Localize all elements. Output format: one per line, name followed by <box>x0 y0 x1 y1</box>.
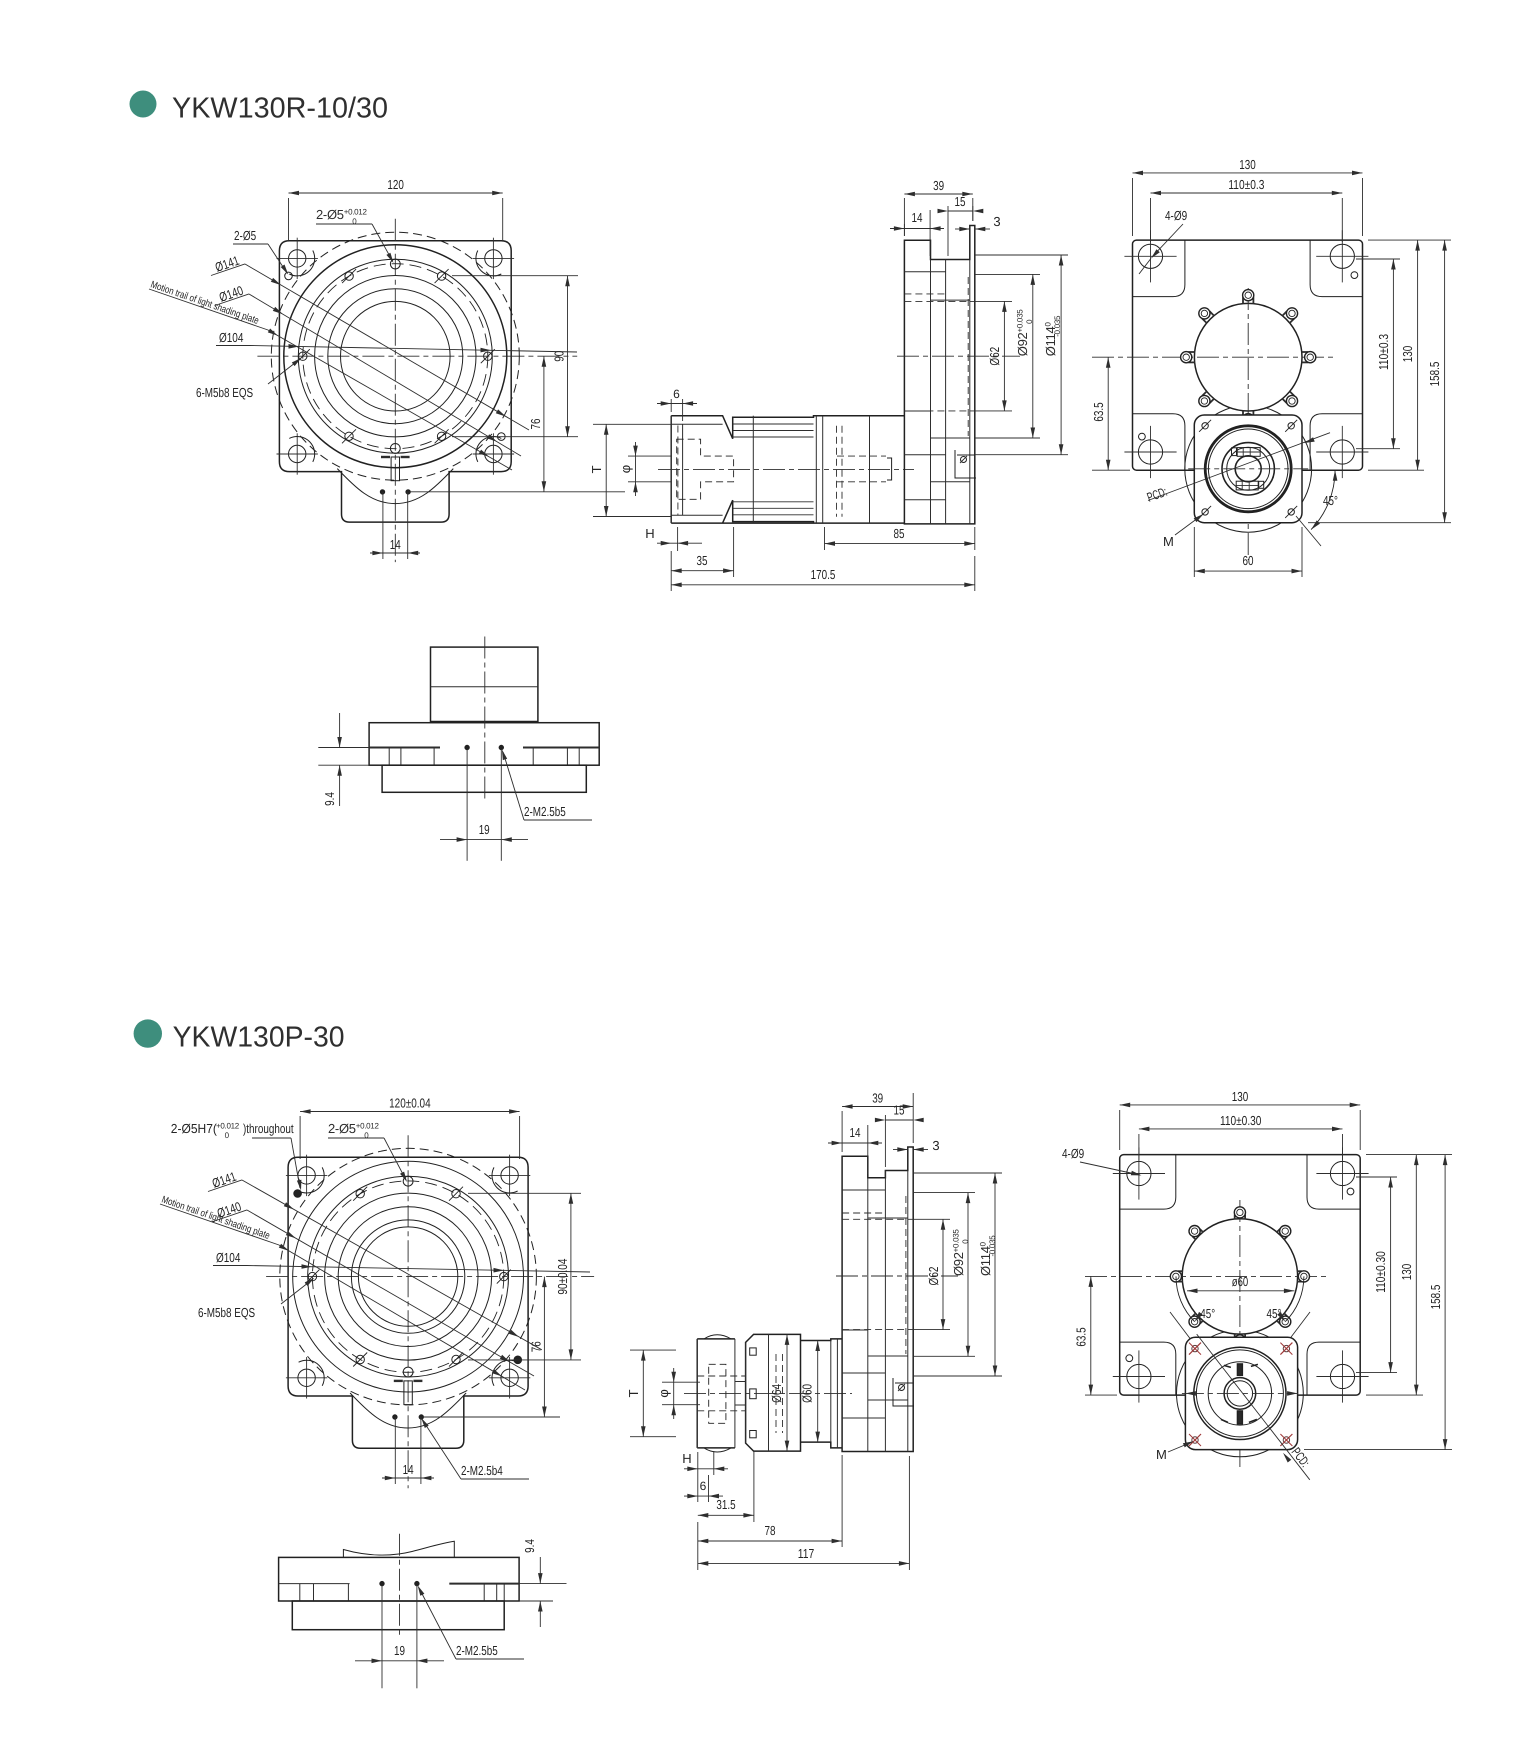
svg-text:Ø64: Ø64 <box>769 1384 784 1403</box>
svg-text:90: 90 <box>552 351 567 362</box>
svg-text:130: 130 <box>1400 346 1415 363</box>
svg-text:Ø60: Ø60 <box>800 1384 815 1403</box>
svg-text:120: 120 <box>387 177 404 192</box>
svg-text:45°: 45° <box>1200 1306 1215 1321</box>
svg-text:2-Ø5H7(: 2-Ø5H7( <box>171 1121 218 1136</box>
svg-text:45°: 45° <box>1267 1306 1282 1321</box>
svg-text:158.5: 158.5 <box>1427 362 1442 387</box>
svg-text:6-M5b8 EQS: 6-M5b8 EQS <box>196 385 253 400</box>
svg-text:35: 35 <box>697 553 708 568</box>
svg-text:130: 130 <box>1232 1089 1249 1104</box>
svg-text:170.5: 170.5 <box>811 567 836 582</box>
svg-text:85: 85 <box>894 526 905 541</box>
svg-text:9.4: 9.4 <box>322 792 337 806</box>
svg-text:76: 76 <box>528 1341 543 1352</box>
svg-text:39: 39 <box>872 1091 883 1106</box>
svg-text:158.5: 158.5 <box>1428 1285 1443 1310</box>
svg-text:4-Ø9: 4-Ø9 <box>1165 208 1187 223</box>
svg-text:6: 6 <box>700 1479 707 1493</box>
svg-text:6: 6 <box>673 387 680 401</box>
svg-text:14: 14 <box>912 210 923 225</box>
svg-text:φ: φ <box>618 465 633 473</box>
svg-text:2-M2.5b4: 2-M2.5b4 <box>461 1463 503 1478</box>
svg-text:M: M <box>1156 1447 1167 1462</box>
svg-text:14: 14 <box>850 1125 861 1140</box>
svg-text:YKW130P-30: YKW130P-30 <box>173 1022 345 1054</box>
svg-text:Ø62: Ø62 <box>926 1267 941 1286</box>
svg-text:14: 14 <box>403 1462 414 1477</box>
svg-text:19: 19 <box>479 822 490 837</box>
svg-text:63.5: 63.5 <box>1091 402 1106 421</box>
svg-text:76: 76 <box>528 419 543 430</box>
svg-text:9.4: 9.4 <box>522 1539 537 1553</box>
svg-text:15: 15 <box>955 194 966 209</box>
svg-text:3: 3 <box>932 1138 939 1153</box>
svg-text:T: T <box>626 1389 641 1397</box>
svg-text:6-M5b8 EQS: 6-M5b8 EQS <box>198 1305 255 1320</box>
svg-text:39: 39 <box>933 178 944 193</box>
svg-text:T: T <box>589 465 604 473</box>
svg-text:Ø62: Ø62 <box>987 347 1002 366</box>
svg-text:3: 3 <box>993 214 1000 229</box>
svg-text:YKW130R-10/30: YKW130R-10/30 <box>172 93 388 125</box>
svg-text:63.5: 63.5 <box>1074 1327 1089 1346</box>
svg-text:Ø104: Ø104 <box>219 330 243 345</box>
svg-text:45°: 45° <box>1323 493 1338 508</box>
svg-text:H: H <box>682 1451 691 1466</box>
svg-text:)throughout: )throughout <box>243 1121 294 1136</box>
svg-text:90±0.04: 90±0.04 <box>555 1259 570 1295</box>
svg-text:H: H <box>645 526 654 541</box>
svg-text:4-Ø9: 4-Ø9 <box>1062 1146 1084 1161</box>
svg-text:2-M2.5b5: 2-M2.5b5 <box>524 804 566 819</box>
svg-text:117: 117 <box>798 1546 815 1561</box>
svg-text:φ: φ <box>656 1389 671 1397</box>
svg-text:110±0.30: 110±0.30 <box>1373 1251 1388 1293</box>
svg-text:120±0.04: 120±0.04 <box>389 1096 431 1111</box>
svg-text:ø60: ø60 <box>1232 1274 1249 1289</box>
svg-text:2-Ø5: 2-Ø5 <box>234 228 256 243</box>
svg-text:78: 78 <box>765 1523 776 1538</box>
svg-text:19: 19 <box>394 1643 405 1658</box>
svg-text:15: 15 <box>894 1103 905 1118</box>
svg-text:110±0.30: 110±0.30 <box>1220 1113 1262 1128</box>
svg-text:14: 14 <box>390 537 401 552</box>
svg-text:M: M <box>1163 534 1174 549</box>
svg-text:130: 130 <box>1239 157 1256 172</box>
svg-text:130: 130 <box>1399 1264 1414 1281</box>
svg-text:110±0.3: 110±0.3 <box>1228 177 1264 192</box>
svg-text:31.5: 31.5 <box>716 1497 735 1512</box>
svg-text:110±0.3: 110±0.3 <box>1376 334 1391 370</box>
svg-text:Ø104: Ø104 <box>216 1250 240 1265</box>
svg-text:60: 60 <box>1243 553 1254 568</box>
svg-text:2-M2.5b5: 2-M2.5b5 <box>456 1643 498 1658</box>
